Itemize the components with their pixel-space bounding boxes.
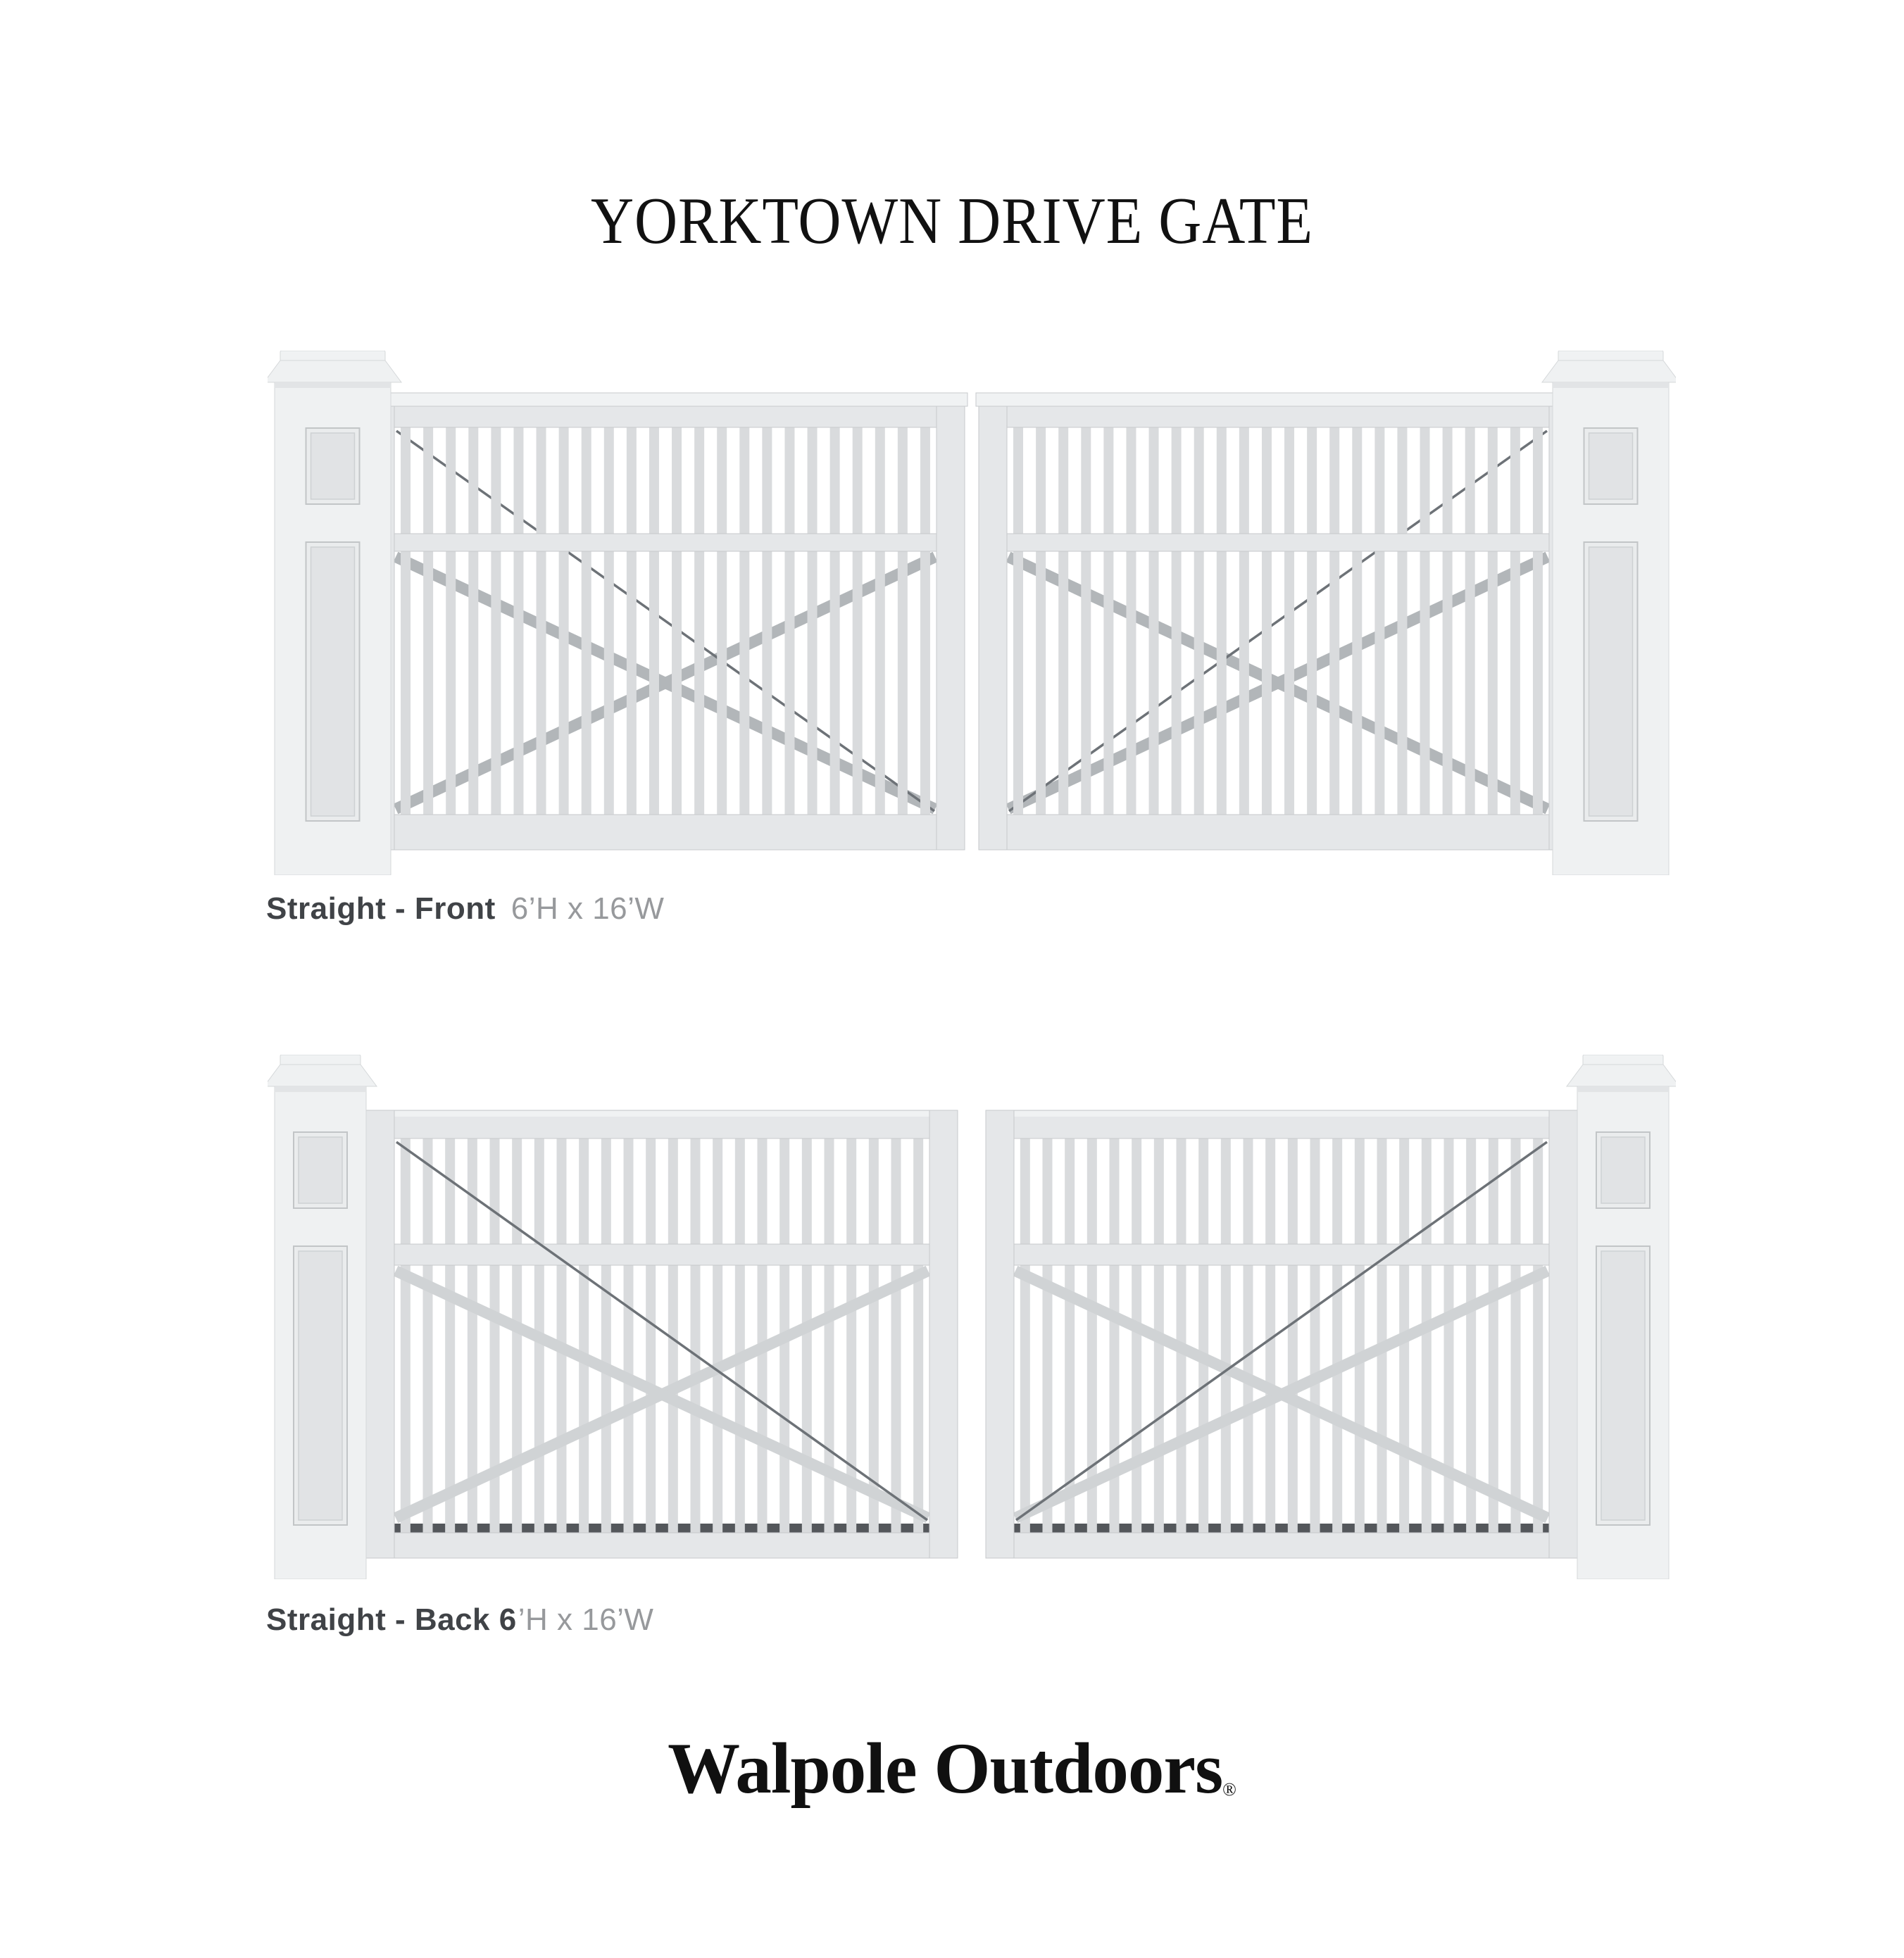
spec-sheet-page: YORKTOWN DRIVE GATE Straight - Front6’H … [0, 0, 1904, 1958]
caption-label: Straight - Front [266, 891, 496, 926]
figure-caption-front: Straight - Front6’H x 16’W [266, 891, 664, 927]
gate-illustration-back [268, 1055, 1676, 1579]
caption-dimensions: ’H x 16’W [518, 1602, 654, 1637]
gate-figure-back [268, 1055, 1676, 1579]
brand-logo-text: Walpole Outdoors [668, 1728, 1222, 1809]
caption-label: Straight - Back 6 [266, 1602, 517, 1637]
registered-mark: ® [1222, 1779, 1236, 1800]
caption-dimensions: 6’H x 16’W [511, 891, 665, 926]
page-title: YORKTOWN DRIVE GATE [95, 185, 1809, 258]
brand-logo: Walpole Outdoors® [0, 1729, 1904, 1809]
figure-caption-back: Straight - Back 6’H x 16’W [266, 1602, 653, 1638]
gate-illustration-front [268, 351, 1676, 875]
gate-figure-front [268, 351, 1676, 875]
